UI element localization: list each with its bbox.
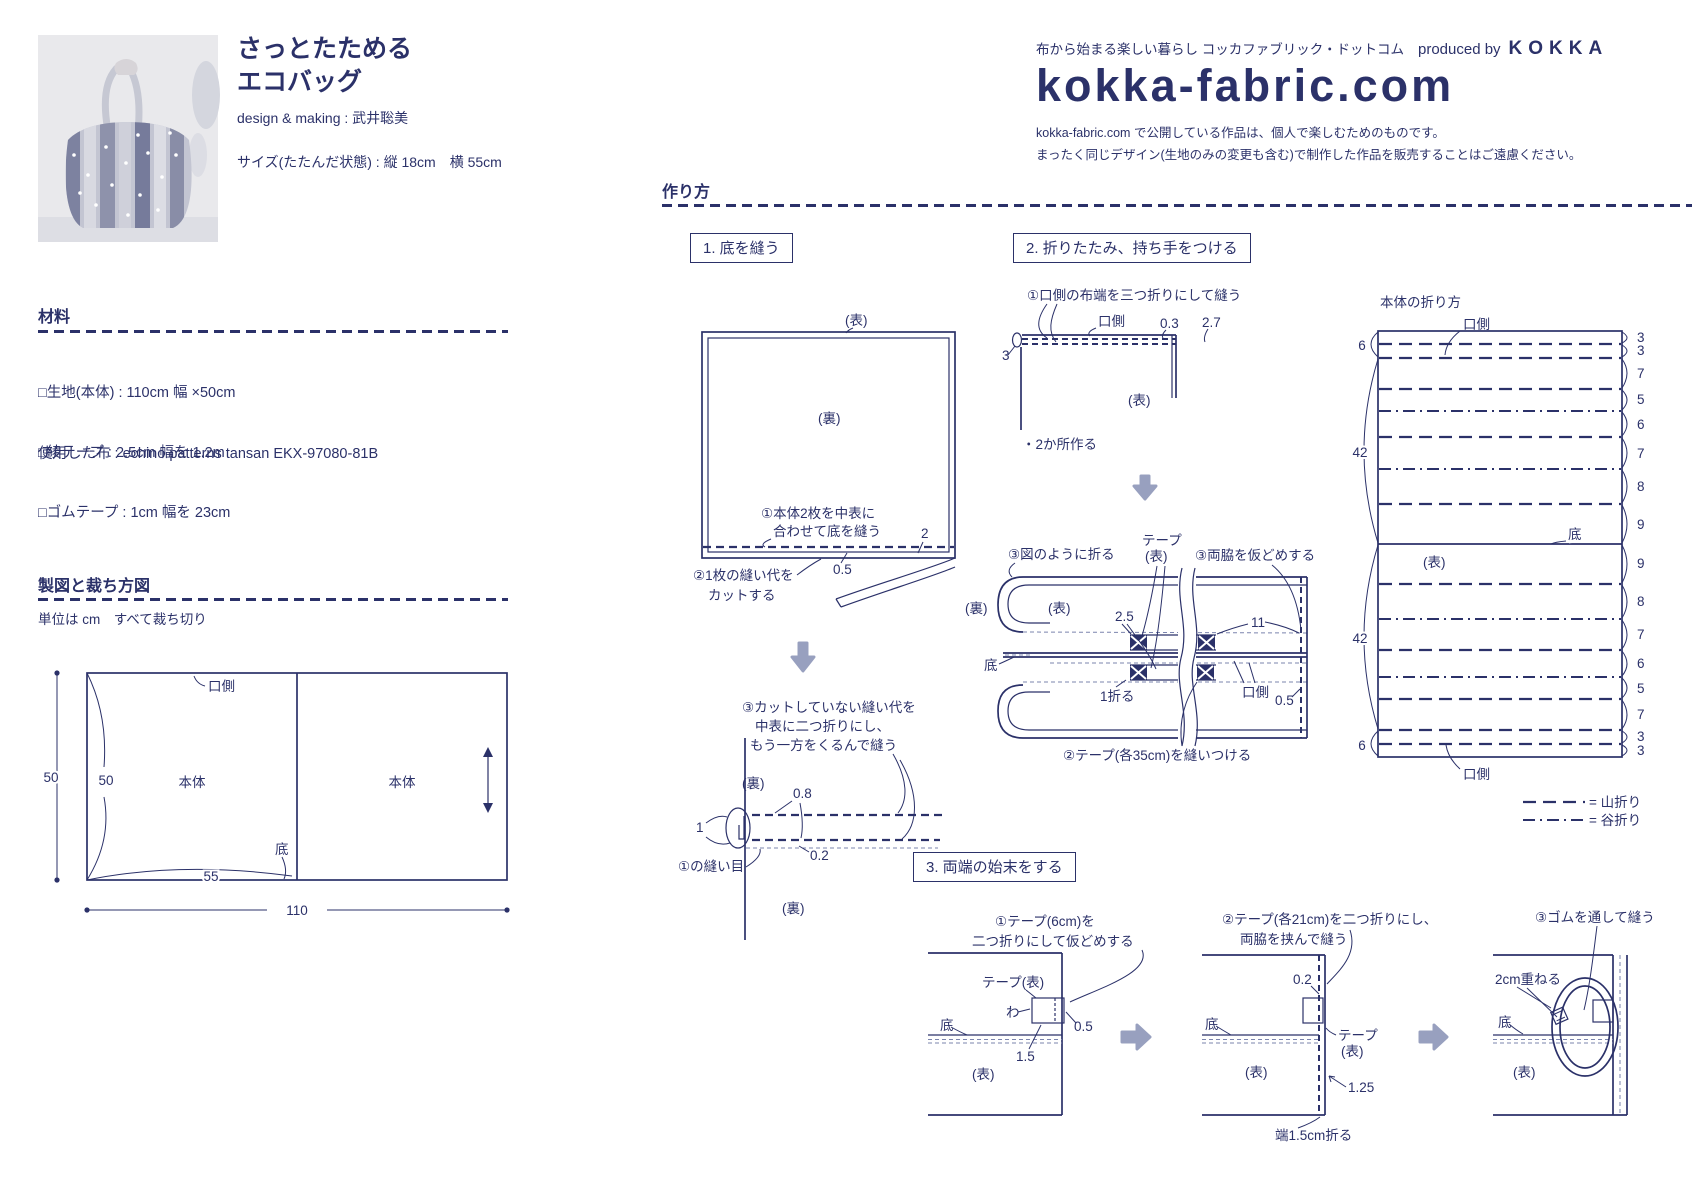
- label-soko2: 底: [1205, 1017, 1219, 1032]
- fabric-used: 使用した布 : echino patterns tansan EKX-97080…: [38, 444, 378, 464]
- elastic-loop: [1551, 978, 1618, 1076]
- step1-sew-note: 合わせて底を縫う: [773, 524, 881, 539]
- dim-1: 1: [696, 820, 704, 835]
- label-omote: (表): [972, 1067, 995, 1082]
- down-arrow-icon: [792, 643, 814, 671]
- label-tape2: テープ: [1338, 1028, 1378, 1043]
- label-seam1: ①の縫い目: [678, 859, 744, 874]
- fold-lines: [1378, 344, 1622, 744]
- label-soko: 底: [984, 658, 998, 673]
- label-omote: (表): [1128, 393, 1151, 408]
- designer-credit: design & making : 武井聡美: [237, 108, 408, 128]
- title-line2: エコバッグ: [237, 66, 412, 99]
- fold-left-dim: 6: [1358, 338, 1366, 353]
- cutting-rule: [38, 598, 508, 601]
- body-fold-chart: 本体の折り方 6 42 42 6: [1300, 280, 1700, 850]
- step1-roll-note: もう一方をくるんで縫う: [750, 738, 897, 753]
- fold-chart-title: 本体の折り方: [1380, 295, 1461, 310]
- dim-27: 2.7: [1202, 315, 1221, 330]
- label-ura: (裏): [965, 601, 988, 616]
- title-line1: さっとたためる: [237, 33, 412, 66]
- fold-right-dim: 3: [1637, 343, 1645, 358]
- material-item: □ゴムテープ : 1cm 幅を 23cm: [38, 503, 235, 523]
- site-logo: kokka-fabric.com: [1036, 60, 1454, 112]
- fold-right-dim: 3: [1637, 729, 1645, 744]
- step3-note2: ②テープ(各21cm)を二つ折りにし、: [1222, 912, 1437, 927]
- label-hontai-1: 本体: [179, 775, 206, 790]
- step2-baste-note: ③両脇を仮どめする: [1195, 548, 1315, 563]
- product-photo: [38, 35, 218, 242]
- dim-05: 0.5: [1275, 693, 1294, 708]
- legend-valley: = 谷折り: [1589, 813, 1641, 828]
- step2-two-places: ・2か所作る: [1022, 437, 1097, 452]
- dim-11: 11: [1251, 615, 1265, 630]
- label-omote2: (表): [1245, 1065, 1268, 1080]
- dim-3: 3: [1002, 348, 1010, 363]
- right-arrow-icon: [1122, 1025, 1150, 1049]
- notice-line1: kokka-fabric.com で公開している作品は、個人で楽しむためのもので…: [1036, 122, 1581, 144]
- howto-heading: 作り方: [662, 178, 710, 202]
- fold-right-dim: 5: [1637, 392, 1645, 407]
- fold-right-dim: 7: [1637, 446, 1645, 461]
- notice-line2: まったく同じデザイン(生地のみの変更も含む)で制作した作品を販売することはご遠慮…: [1036, 144, 1581, 166]
- fold-right-dim: 9: [1637, 556, 1645, 571]
- fold-right-dim: 7: [1637, 627, 1645, 642]
- step1-title-box: 1. 底を縫う: [690, 233, 793, 263]
- page-title: さっとたためる エコバッグ: [237, 33, 412, 99]
- label-overlap: 2cm重ねる: [1495, 972, 1561, 987]
- label-soko: 底: [1568, 527, 1582, 542]
- fold-right-dim: 7: [1637, 707, 1645, 722]
- label-bottom-ura: (裏): [782, 901, 805, 916]
- cutting-note: 単位は cm すべて裁ち切り: [38, 608, 207, 628]
- fold-left-dim: 42: [1352, 631, 1367, 646]
- step3-note1: 二つ折りにして仮どめする: [972, 934, 1134, 949]
- fold-right-dim: 6: [1637, 656, 1645, 671]
- dim-110: 110: [286, 903, 308, 918]
- label-kuchigawa: 口側: [1098, 314, 1125, 329]
- material-item: □生地(本体) : 110cm 幅 ×50cm: [38, 383, 235, 403]
- fold-legend: = 山折り = 谷折り: [1523, 795, 1641, 828]
- grain-arrow-icon: [483, 747, 493, 813]
- step1-roll-note: ③カットしていない縫い代を: [742, 700, 916, 715]
- label-soko: 底: [275, 842, 289, 857]
- label-fold1: 1折る: [1100, 689, 1135, 704]
- dim-05: 0.5: [1074, 1019, 1093, 1034]
- step2-diagram: ①口側の布端を三つ折りにして縫う 口側 0.3 2.7 3 (表) ・2か所作る: [920, 280, 1330, 790]
- fold-right-dim: 6: [1637, 417, 1645, 432]
- dim-15: 1.5: [1016, 1049, 1035, 1064]
- howto-rule: [662, 204, 1692, 207]
- pattern-sheet: さっとたためる エコバッグ design & making : 武井聡美 サイズ…: [0, 0, 1700, 1202]
- step1-roll-note: 中表に二つ折りにし、: [755, 719, 890, 734]
- cutting-heading: 製図と裁ち方図: [38, 572, 150, 596]
- label-soko: 底: [940, 1018, 954, 1033]
- step3-diagram: ①テープ(6cm)を 二つ折りにして仮どめする テープ(表) わ 底 0.5 1…: [900, 890, 1700, 1190]
- fold-right-dim: 7: [1637, 366, 1645, 381]
- dim-50-inner: 50: [98, 773, 113, 788]
- fold-left-dim: 42: [1352, 445, 1367, 460]
- label-omote3: (表): [1513, 1065, 1536, 1080]
- fold-left-dim: 6: [1358, 738, 1366, 753]
- dim-08: 0.8: [793, 786, 812, 801]
- step2-title-box: 2. 折りたたみ、持ち手をつける: [1013, 233, 1251, 263]
- usage-notice: kokka-fabric.com で公開している作品は、個人で楽しむためのもので…: [1036, 122, 1581, 166]
- fold-right-dim: 9: [1637, 517, 1645, 532]
- step2-hem-note: ①口側の布端を三つ折りにして縫う: [1027, 288, 1241, 303]
- dim-125: 1.25: [1348, 1080, 1374, 1095]
- label-hontai-2: 本体: [389, 775, 416, 790]
- step1-sew-note: ①本体2枚を中表に: [761, 506, 875, 521]
- step1-cut-note: カットする: [708, 588, 776, 603]
- label-tape-omote: テープ(表): [982, 975, 1044, 990]
- step3-edge-fold: 端1.5cm折る: [1275, 1128, 1352, 1143]
- right-arrow-icon: [1420, 1025, 1447, 1049]
- finished-size: サイズ(たたんだ状態) : 縦 18cm 横 55cm: [237, 152, 502, 172]
- label-kuchigawa-top: 口側: [1463, 317, 1490, 332]
- cutting-diagram: 50 50 口側 本体 本体 底 55 110: [30, 635, 560, 935]
- label-omote: (表): [1423, 555, 1446, 570]
- dim-02: 0.2: [810, 848, 829, 863]
- label-roll-ura: (裏): [742, 776, 765, 791]
- dim-25: 2.5: [1115, 609, 1134, 624]
- dim-02: 0.2: [1293, 972, 1312, 987]
- brand-tagline-row: 布から始まる楽しい暮らし コッカファブリック・ドットコムproduced byK…: [1036, 38, 1532, 60]
- step2-tape-sew-note: ②テープ(各35cm)を縫いつける: [1063, 748, 1251, 763]
- step2-fold-note: ③図のように折る: [1008, 547, 1115, 562]
- dim-55: 55: [203, 869, 218, 884]
- down-arrow-icon: [1134, 476, 1156, 499]
- label-tape2-omote: (表): [1341, 1044, 1364, 1059]
- folded-stack: [998, 568, 1307, 748]
- label-kuchigawa2: 口側: [1242, 685, 1269, 700]
- fold-right-dim: 8: [1637, 479, 1645, 494]
- label-tape-omote: (表): [1145, 549, 1168, 564]
- label-wa: わ: [1006, 1005, 1020, 1020]
- label-kuchigawa: 口側: [208, 679, 235, 694]
- step1-cut-note: ②1枚の縫い代を: [693, 568, 794, 583]
- dim-50-outer: 50: [43, 770, 58, 785]
- produced-by: produced by: [1418, 41, 1501, 58]
- step3-note2: 両脇を挟んで縫う: [1240, 932, 1347, 947]
- hem-band: [1013, 333, 1177, 430]
- label-omote: (表): [845, 313, 868, 328]
- fold-right-dim: 3: [1637, 743, 1645, 758]
- fold-right-dim: 8: [1637, 594, 1645, 609]
- label-ura: (裏): [818, 411, 841, 426]
- kokka-wordmark: KOKKA: [1509, 38, 1609, 59]
- legend-mountain: = 山折り: [1589, 795, 1641, 810]
- label-tape: テープ: [1142, 533, 1182, 548]
- bag-body: [66, 120, 192, 230]
- fold-right-dim: 5: [1637, 681, 1645, 696]
- label-omote2: (表): [1048, 601, 1071, 616]
- step3-note3: ③ゴムを通して縫う: [1535, 909, 1655, 925]
- step3-note1: ①テープ(6cm)を: [995, 914, 1095, 929]
- dim-03: 0.3: [1160, 316, 1179, 331]
- label-kuchigawa-bottom: 口側: [1463, 767, 1490, 782]
- dim-05: 0.5: [833, 562, 852, 577]
- materials-heading: 材料: [38, 303, 70, 327]
- materials-rule: [38, 330, 508, 333]
- label-soko3: 底: [1498, 1015, 1512, 1030]
- brand-tagline: 布から始まる楽しい暮らし コッカファブリック・ドットコム: [1036, 42, 1404, 57]
